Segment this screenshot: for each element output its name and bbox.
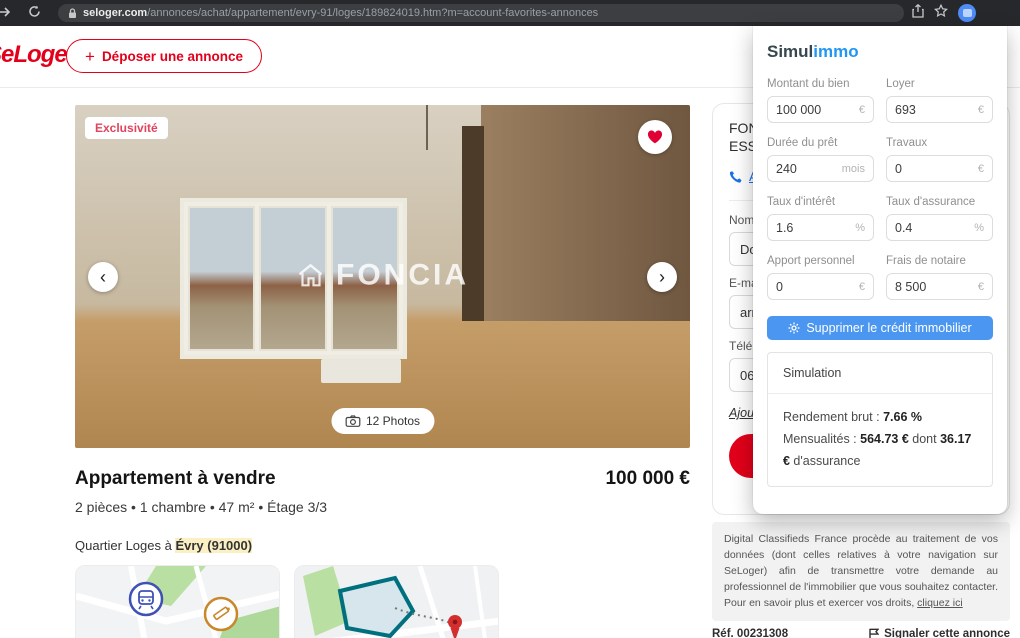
yield-line: Rendement brut : 7.66 % (783, 407, 977, 429)
listing-title: Appartement à vendre (75, 468, 276, 490)
photo-radiator (321, 359, 401, 383)
browser-toolbar: seloger.com/annonces/achat/appartement/e… (0, 0, 1020, 26)
monthly-value: 564.73 € (860, 432, 909, 446)
percent-suffix: % (974, 222, 984, 234)
euro-suffix: € (859, 104, 865, 116)
photo-ceiling-wire (426, 105, 428, 150)
map-card-amenities[interactable] (75, 565, 280, 638)
district-line: Quartier Loges à Évry (91000) (75, 538, 252, 553)
euro-suffix: € (978, 163, 984, 175)
apport-input[interactable] (776, 280, 838, 294)
map-card-district[interactable] (294, 565, 499, 638)
montant-input[interactable] (776, 103, 838, 117)
legal-link[interactable]: cliquez ici (917, 597, 963, 609)
travaux-input[interactable] (895, 162, 957, 176)
field-taux-interet: Taux d'intérêt % (767, 196, 874, 241)
field-taux-assurance: Taux d'assurance % (886, 196, 993, 241)
taux-interet-input[interactable] (776, 221, 838, 235)
browser-actions (912, 4, 976, 23)
favorite-button[interactable] (638, 120, 672, 154)
page: seloger.com/annonces/achat/appartement/e… (0, 0, 1020, 638)
seloger-logo[interactable]: SeLoger (0, 41, 75, 69)
plus-icon: + (85, 48, 95, 65)
url-path: /annonces/achat/appartement/evry-91/loge… (147, 7, 598, 19)
euro-suffix: € (978, 104, 984, 116)
yield-value: 7.66 % (883, 410, 922, 424)
field-travaux: Travaux € (886, 137, 993, 182)
field-montant-du-bien: Montant du bien € (767, 78, 874, 123)
listing-photo[interactable]: Exclusivité ‹ › FONCIA 12 Photos (75, 105, 690, 448)
simulation-card: Simulation Rendement brut : 7.66 % Mensu… (767, 352, 993, 487)
legal-notice: Digital Classifieds France procède au tr… (712, 522, 1010, 621)
taux-assurance-input[interactable] (895, 221, 957, 235)
next-photo-button[interactable]: › (647, 262, 677, 292)
photos-count-button[interactable]: 12 Photos (331, 408, 434, 434)
simulimmo-title: Simulimmo (767, 42, 993, 62)
url-bar[interactable]: seloger.com/annonces/achat/appartement/e… (58, 4, 904, 22)
field-loyer: Loyer € (886, 78, 993, 123)
exclusivity-badge: Exclusivité (85, 117, 168, 139)
simulimmo-fields: Montant du bien € Loyer € Durée du prêt … (767, 78, 993, 300)
prev-photo-button[interactable]: ‹ (88, 262, 118, 292)
percent-suffix: % (855, 222, 865, 234)
duree-input[interactable] (776, 162, 838, 176)
field-frais-notaire: Frais de notaire € (886, 255, 993, 300)
euro-suffix: € (978, 281, 984, 293)
euro-suffix: € (859, 281, 865, 293)
flag-icon (869, 628, 879, 638)
listing-price: 100 000 € (605, 468, 690, 490)
listing-details: 2 pièces • 1 chambre • 47 m² • Étage 3/3 (75, 499, 327, 515)
simulimmo-popup: Simulimmo Montant du bien € Loyer € Duré… (753, 26, 1007, 514)
camera-icon (345, 415, 360, 427)
lock-icon (68, 8, 77, 19)
reference-row: Réf. 00231308 Signaler cette annonce (712, 628, 1010, 638)
listing-reference: Réf. 00231308 (712, 628, 788, 638)
simulation-results: Rendement brut : 7.66 % Mensualités : 56… (768, 394, 992, 486)
loyer-input[interactable] (895, 103, 957, 117)
listing-title-row: Appartement à vendre 100 000 € (75, 468, 690, 490)
map-thumbnails (75, 565, 499, 638)
url-domain: seloger.com (83, 7, 147, 19)
monthly-line: Mensualités : 564.73 € dont 36.17 € d'as… (783, 429, 977, 473)
post-ad-label: Déposer une annonce (102, 49, 243, 64)
field-duree-pret: Durée du prêt mois (767, 137, 874, 182)
mois-suffix: mois (842, 163, 865, 175)
forward-icon[interactable] (0, 5, 14, 21)
frais-notaire-input[interactable] (895, 280, 957, 294)
field-apport-personnel: Apport personnel € (767, 255, 874, 300)
district-link[interactable]: Évry (91000) (175, 538, 252, 553)
foncia-watermark: FONCIA (296, 258, 469, 292)
remove-credit-button[interactable]: Supprimer le crédit immobilier (767, 316, 993, 340)
phone-icon (729, 170, 743, 184)
bookmark-star-icon[interactable] (934, 4, 948, 23)
house-icon (296, 261, 330, 289)
profile-avatar[interactable] (958, 4, 976, 22)
share-icon[interactable] (912, 4, 924, 23)
report-listing-link[interactable]: Signaler cette annonce (869, 628, 1010, 638)
gear-icon (788, 322, 800, 334)
reload-icon[interactable] (24, 5, 44, 21)
simulation-title: Simulation (768, 353, 992, 394)
post-ad-button[interactable]: + Déposer une annonce (66, 39, 262, 73)
heart-icon (647, 130, 663, 144)
